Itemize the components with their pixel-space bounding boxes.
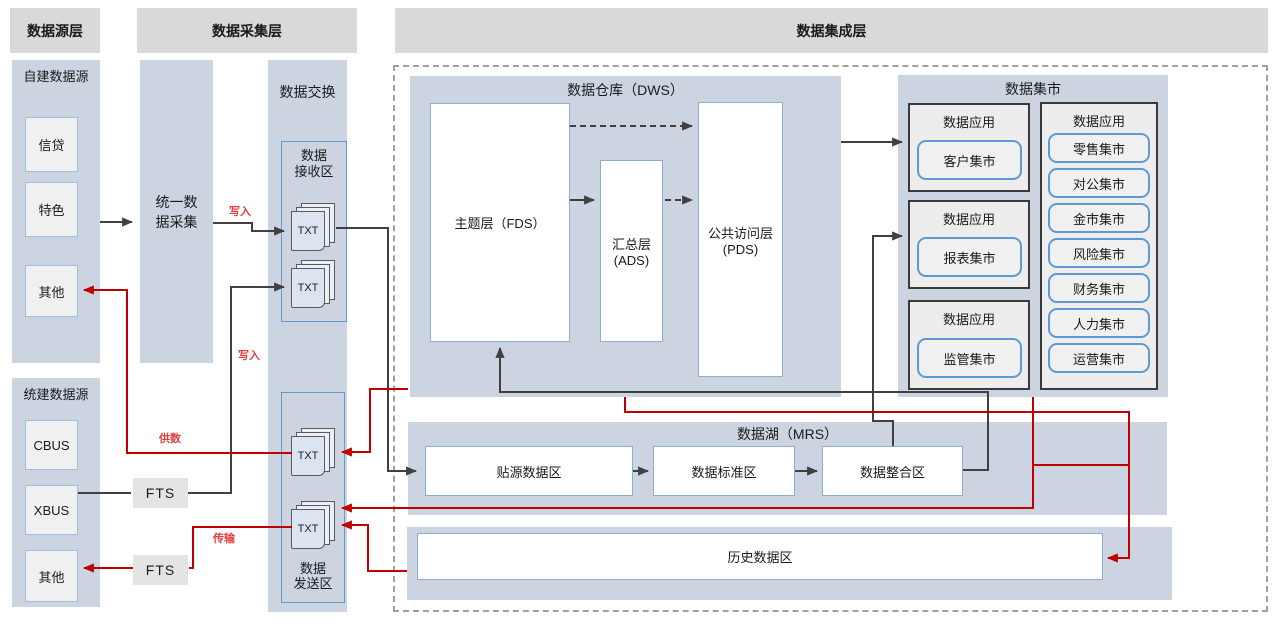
mart-pill-finance: 财务集市 [1048,273,1150,303]
txt-file-icon: TXT [291,268,325,308]
send-zone-label: 数据 发送区 [282,561,344,592]
data-app-title: 数据应用 [910,209,1028,228]
fts-box-bottom: FTS [133,555,188,585]
data-mart-title: 数据集市 [898,79,1168,99]
data-app-title: 数据应用 [1042,111,1156,130]
mart-pill-retail: 零售集市 [1048,133,1150,163]
data-exchange-title: 数据交换 [268,82,347,102]
data-app-title: 数据应用 [910,112,1028,131]
data-app-title: 数据应用 [910,309,1028,328]
mart-pill-regulatory: 监管集市 [917,338,1022,378]
unified-data-collection: 统一数 据采集 [140,60,213,363]
unified-sources-title: 统建数据源 [12,384,100,403]
mrs-zone-standard: 数据标准区 [653,446,795,496]
self-built-sources-title: 自建数据源 [12,66,100,85]
pds-box: 公共访问层 (PDS) [698,102,783,377]
flow-label-write-top: 写入 [229,203,251,219]
txt-file-icon: TXT [291,509,325,549]
txt-stack-send-1: TXT [291,428,337,478]
source-box-credit: 信贷 [25,117,78,172]
header-integration-layer: 数据集成层 [395,8,1268,53]
source-box-other-bottom: 其他 [25,550,78,602]
txt-file-icon: TXT [291,436,325,476]
flow-label-write-bottom: 写入 [238,347,260,363]
mart-pill-risk: 风险集市 [1048,238,1150,268]
send-zone: 数据 发送区 [281,392,345,603]
mart-pill-customer: 客户集市 [917,140,1022,180]
source-box-other-top: 其他 [25,265,78,317]
history-data-area: 历史数据区 [417,533,1103,580]
fds-box: 主题层（FDS） [430,103,570,342]
mrs-zone-source: 贴源数据区 [425,446,633,496]
mart-pill-operations: 运营集市 [1048,343,1150,373]
fts-box-top: FTS [133,478,188,508]
architecture-diagram: 数据源层 数据采集层 数据集成层 自建数据源 信贷 特色 其他 统建数据源 CB… [0,0,1280,627]
source-box-xbus: XBUS [25,485,78,535]
mart-pill-report: 报表集市 [917,237,1022,277]
dws-title: 数据仓库（DWS） [410,80,841,100]
txt-file-icon: TXT [291,211,325,251]
mart-pill-corporate: 对公集市 [1048,168,1150,198]
source-box-cbus: CBUS [25,420,78,470]
txt-stack-receive-2: TXT [291,260,337,310]
receive-zone-label: 数据 接收区 [282,148,346,179]
mart-pill-financial-market: 金市集市 [1048,203,1150,233]
header-source-layer: 数据源层 [10,8,100,53]
flow-label-supply: 供数 [159,430,181,446]
txt-stack-receive-1: TXT [291,203,337,253]
ads-box: 汇总层 (ADS) [600,160,663,342]
header-collection-layer: 数据采集层 [137,8,357,53]
txt-stack-send-2: TXT [291,501,337,551]
source-box-special: 特色 [25,182,78,237]
mrs-zone-integrate: 数据整合区 [822,446,963,496]
mart-pill-hr: 人力集市 [1048,308,1150,338]
flow-label-transfer: 传输 [213,530,235,546]
mrs-title: 数据湖（MRS） [408,424,1167,444]
